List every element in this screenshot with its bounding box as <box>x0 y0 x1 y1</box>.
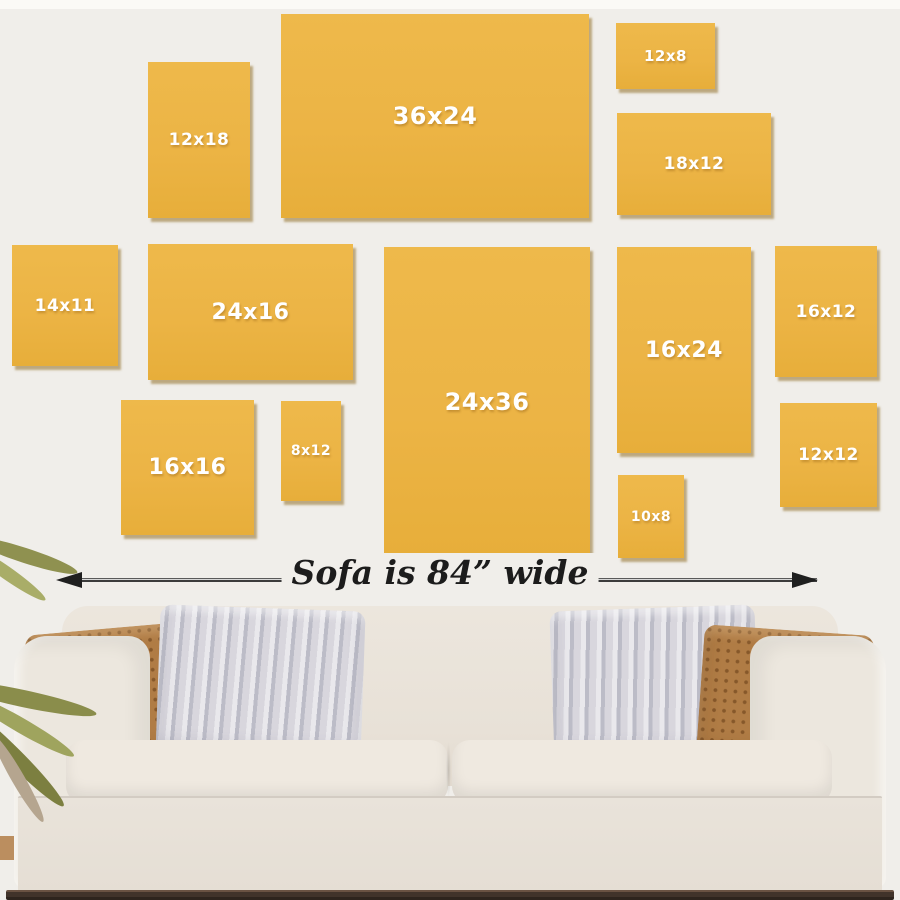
frame-size-label: 16x16 <box>149 455 227 480</box>
wall-art-size-guide: 12x1836x2412x818x1214x1124x1624x3616x241… <box>0 0 900 900</box>
frame-8x12: 8x12 <box>281 401 341 501</box>
frame-size-label: 8x12 <box>291 443 331 459</box>
frame-36x24: 36x24 <box>281 14 589 218</box>
frame-size-label: 16x12 <box>796 302 857 322</box>
floor-line <box>6 890 894 900</box>
frame-16x16: 16x16 <box>121 400 254 535</box>
frame-size-label: 18x12 <box>664 154 725 174</box>
frame-16x12: 16x12 <box>775 246 877 377</box>
frame-size-label: 10x8 <box>631 509 671 525</box>
frame-12x8: 12x8 <box>616 23 715 89</box>
sofa-base <box>18 796 882 894</box>
sofa-seat-cushion-right <box>452 740 832 804</box>
frame-size-label: 24x16 <box>212 300 290 325</box>
arrow-left-icon <box>56 572 82 588</box>
sofa-seat-seam <box>446 742 451 798</box>
frame-12x18: 12x18 <box>148 62 250 218</box>
frame-size-label: 12x18 <box>169 130 230 150</box>
frame-size-label: 36x24 <box>393 102 478 130</box>
frame-16x24: 16x24 <box>617 247 751 453</box>
frame-size-label: 24x36 <box>445 388 530 416</box>
frame-12x12: 12x12 <box>780 403 877 507</box>
frame-size-label: 14x11 <box>35 296 96 316</box>
sofa-width-label: Sofa is 84” wide <box>282 553 599 592</box>
frame-24x16: 24x16 <box>148 244 353 380</box>
sofa-seat-cushion-left <box>66 740 448 804</box>
frame-size-label: 16x24 <box>645 338 723 363</box>
frame-18x12: 18x12 <box>617 113 771 215</box>
frame-size-label: 12x12 <box>798 445 859 465</box>
frame-10x8: 10x8 <box>618 475 684 558</box>
frame-size-label: 12x8 <box>644 47 687 65</box>
frame-14x11: 14x11 <box>12 245 118 366</box>
arrow-right-icon <box>792 572 818 588</box>
top-border <box>0 0 900 9</box>
frame-24x36: 24x36 <box>384 247 590 557</box>
